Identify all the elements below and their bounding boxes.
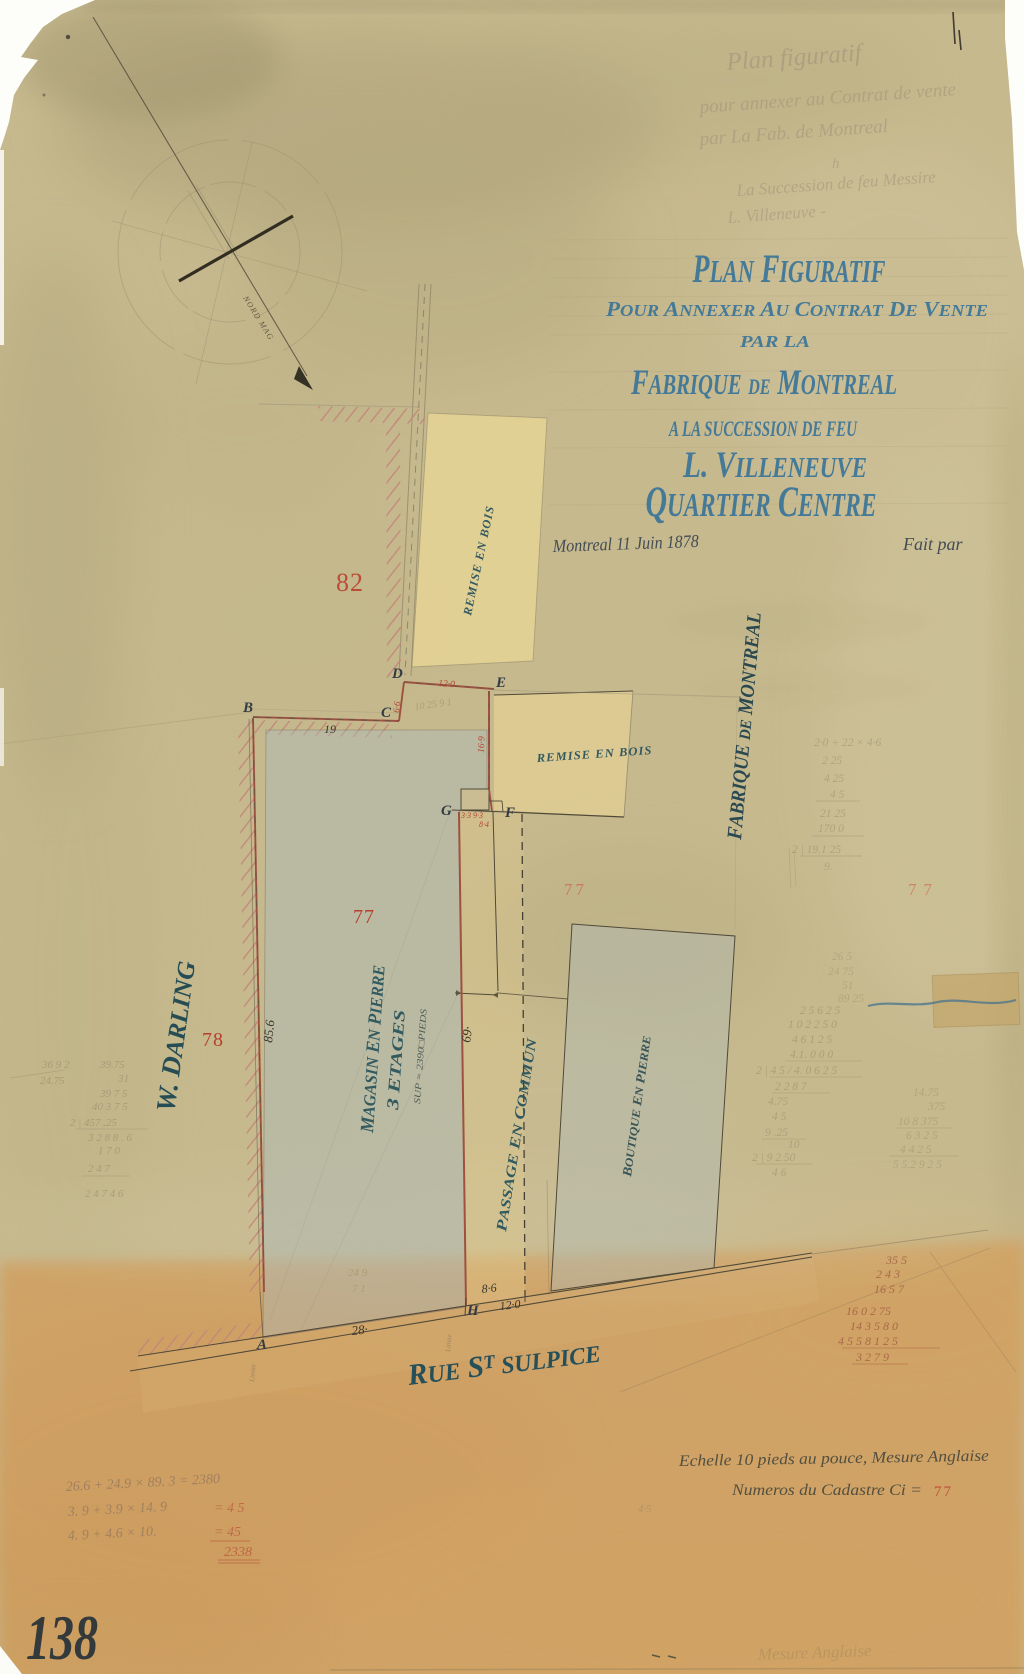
svg-text:h: h <box>832 156 840 172</box>
